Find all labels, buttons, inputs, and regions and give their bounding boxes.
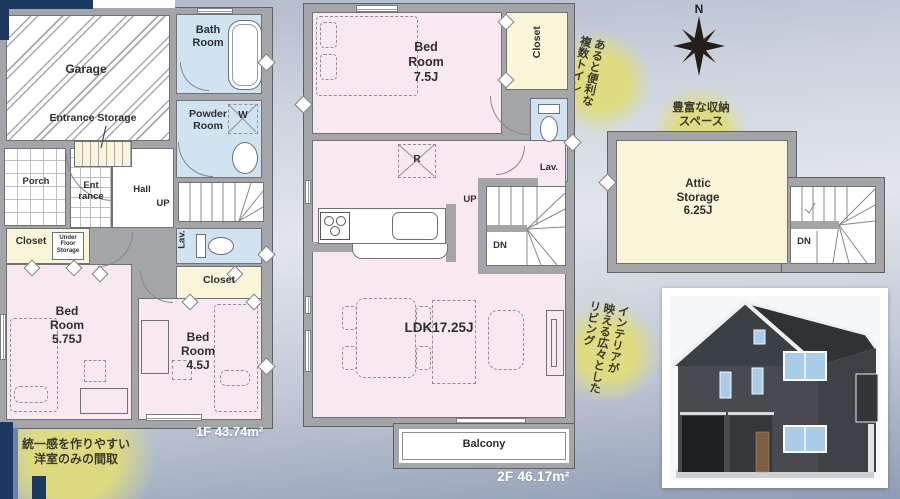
toilet-2f-tank [538, 104, 560, 114]
attic-plan: Attic Storage 6.25J DN [608, 132, 886, 272]
hall-label: Hall [122, 184, 162, 195]
stairs-1f-steps [179, 183, 263, 221]
stairs-wall [478, 178, 538, 186]
stairs-wall [478, 266, 570, 274]
lav-label-1f: Lav. [176, 228, 187, 252]
bed3-pillow [320, 22, 337, 48]
kitchen-sink [392, 212, 438, 240]
window-bed3-top [356, 5, 398, 12]
floor2-plan: R Balcony [304, 4, 574, 468]
compass-rose-icon [667, 16, 731, 76]
floor1-area-label: 1F 43.74m² [196, 424, 263, 439]
balcony-label: Balcony [434, 438, 534, 451]
stairs-2f [486, 186, 566, 266]
dn-label-2f: DN [486, 240, 514, 251]
porch-label: Porch [12, 176, 60, 187]
house-render [670, 296, 880, 480]
window-ldk-left [305, 330, 311, 372]
deco-blue-bar [13, 428, 18, 499]
deco-navy-top [0, 0, 93, 9]
sofa [488, 310, 524, 370]
closet-bed-label: Closet [188, 274, 250, 286]
window-ldk-left [305, 296, 311, 314]
stairs-wall [478, 178, 486, 274]
bed1-chair [84, 360, 106, 382]
dining-chair [416, 346, 431, 370]
dining-chair [342, 306, 357, 330]
bed1-desk [80, 388, 128, 414]
callout-western-rooms: 統一感を作りやすい 洋室のみの間取 [8, 437, 144, 467]
entrance-storage-leader [98, 126, 108, 148]
bed2-desk [141, 320, 169, 374]
entrance-storage-label: Entrance Storage [28, 112, 158, 124]
stairs-2f-steps [487, 187, 565, 265]
attic-label: Attic Storage 6.25J [638, 178, 758, 219]
dn-label-attic: DN [790, 236, 818, 247]
dining-table [356, 298, 416, 378]
closet-hall-label: Closet [8, 236, 54, 248]
window-bed2-bottom [146, 414, 202, 421]
callout-storage: 豊富な収納 スペース [656, 102, 746, 130]
compass-north-label: N [667, 2, 731, 16]
under-floor-label: Under Floor Storage [52, 235, 84, 254]
kitchen-wall [446, 204, 456, 262]
window-ldk-left [305, 180, 311, 204]
washbasin [232, 142, 258, 174]
stove [320, 212, 350, 240]
deco-navy-topleft [0, 0, 9, 40]
kitchen-counter-front [352, 244, 448, 259]
up-label-1f: UP [148, 198, 178, 209]
kitchen-island [432, 300, 476, 384]
closet-2f-label: Closet [531, 17, 543, 67]
dining-chair [342, 346, 357, 370]
window-bed1-left [0, 314, 6, 360]
floor1-plan: W Garage Entrance Stor [0, 8, 272, 428]
floorplan-page: あると便利な 複数トイレ 豊富な収納 スペース インテリアが 映える広々とした … [0, 0, 900, 499]
fridge-label: R [400, 154, 434, 166]
floor2-area-label: 2F 46.17m² [497, 468, 569, 484]
house-exterior-image [670, 296, 880, 480]
ldk-label: LDK17.25J [384, 320, 494, 336]
bed3-pillow [320, 54, 337, 80]
toilet-1f-bowl [208, 237, 234, 255]
tv-board [546, 310, 564, 376]
bed2-label: Bed Room 4.5J [166, 330, 230, 372]
garage-door-marker [93, 0, 175, 8]
window-bath-top [197, 8, 233, 14]
bed1-label: Bed Room 5.75J [32, 304, 102, 346]
lav-2f-label: Lav. [534, 162, 564, 173]
garage-label: Garage [50, 62, 122, 76]
house-render-frame [662, 288, 888, 488]
deco-navy-bar2 [32, 476, 46, 499]
bed1-pillow [14, 386, 48, 403]
bath-label: Bath Room [180, 24, 236, 50]
entrance-label: Ent rance [72, 180, 110, 202]
toilet-2f-bowl [540, 116, 558, 142]
powder-label: Powder Room [178, 108, 238, 133]
stairs-1f [178, 182, 264, 222]
deco-navy-bar1 [0, 422, 13, 499]
up-label-2f: UP [456, 194, 484, 205]
toilet-1f-tank [196, 234, 206, 258]
stairs-attic [790, 186, 876, 264]
stairs-attic-steps [791, 187, 875, 263]
bed3-label: Bed Room 7.5J [386, 40, 466, 84]
compass: N [667, 2, 731, 78]
